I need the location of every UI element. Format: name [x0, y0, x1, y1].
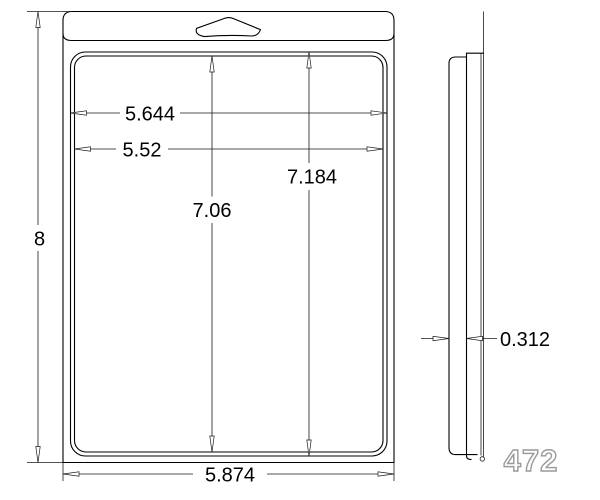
dim-flange-outer-width-label: 5.644	[125, 104, 175, 126]
arrow-up-icon	[210, 56, 214, 72]
hang-hole	[196, 18, 260, 37]
arrow-right-icon	[433, 336, 449, 340]
dim-overall-height-label: 8	[34, 229, 45, 251]
dim-flange-outer-height-label: 7.184	[287, 167, 337, 189]
dim-overall-width-label: 5.874	[205, 465, 255, 487]
arrow-right-icon	[371, 111, 387, 115]
arrow-left-icon	[75, 147, 91, 151]
dim-depth-label: 0.312	[500, 329, 550, 351]
arrow-left-icon	[63, 472, 79, 476]
arrow-up-icon	[307, 52, 311, 68]
arrow-down-icon	[36, 447, 40, 463]
side-view	[449, 12, 484, 462]
arrow-down-icon	[210, 436, 214, 452]
dim-flange-inner-width-label: 5.52	[123, 140, 162, 162]
arrow-up-icon	[36, 12, 40, 28]
side-bottom-bead	[480, 457, 484, 461]
package-outline	[63, 12, 394, 463]
side-inner-wall	[467, 57, 472, 459]
dimensions: 8 5.644 5.52 7.06 7.184 5.874 0.312	[27, 12, 550, 487]
blister-flange-inner	[75, 56, 384, 452]
dim-flange-inner-height-label: 7.06	[193, 200, 232, 222]
arrow-left-icon	[71, 111, 87, 115]
band-line	[63, 34, 394, 41]
technical-drawing: 8 5.644 5.52 7.06 7.184 5.874 0.312	[0, 0, 600, 500]
arrow-left-icon	[467, 336, 483, 340]
arrow-right-icon	[367, 147, 383, 151]
part-number-watermark: 472	[504, 443, 559, 478]
arrow-down-icon	[307, 440, 311, 456]
front-view	[63, 12, 394, 463]
arrow-right-icon	[378, 472, 394, 476]
